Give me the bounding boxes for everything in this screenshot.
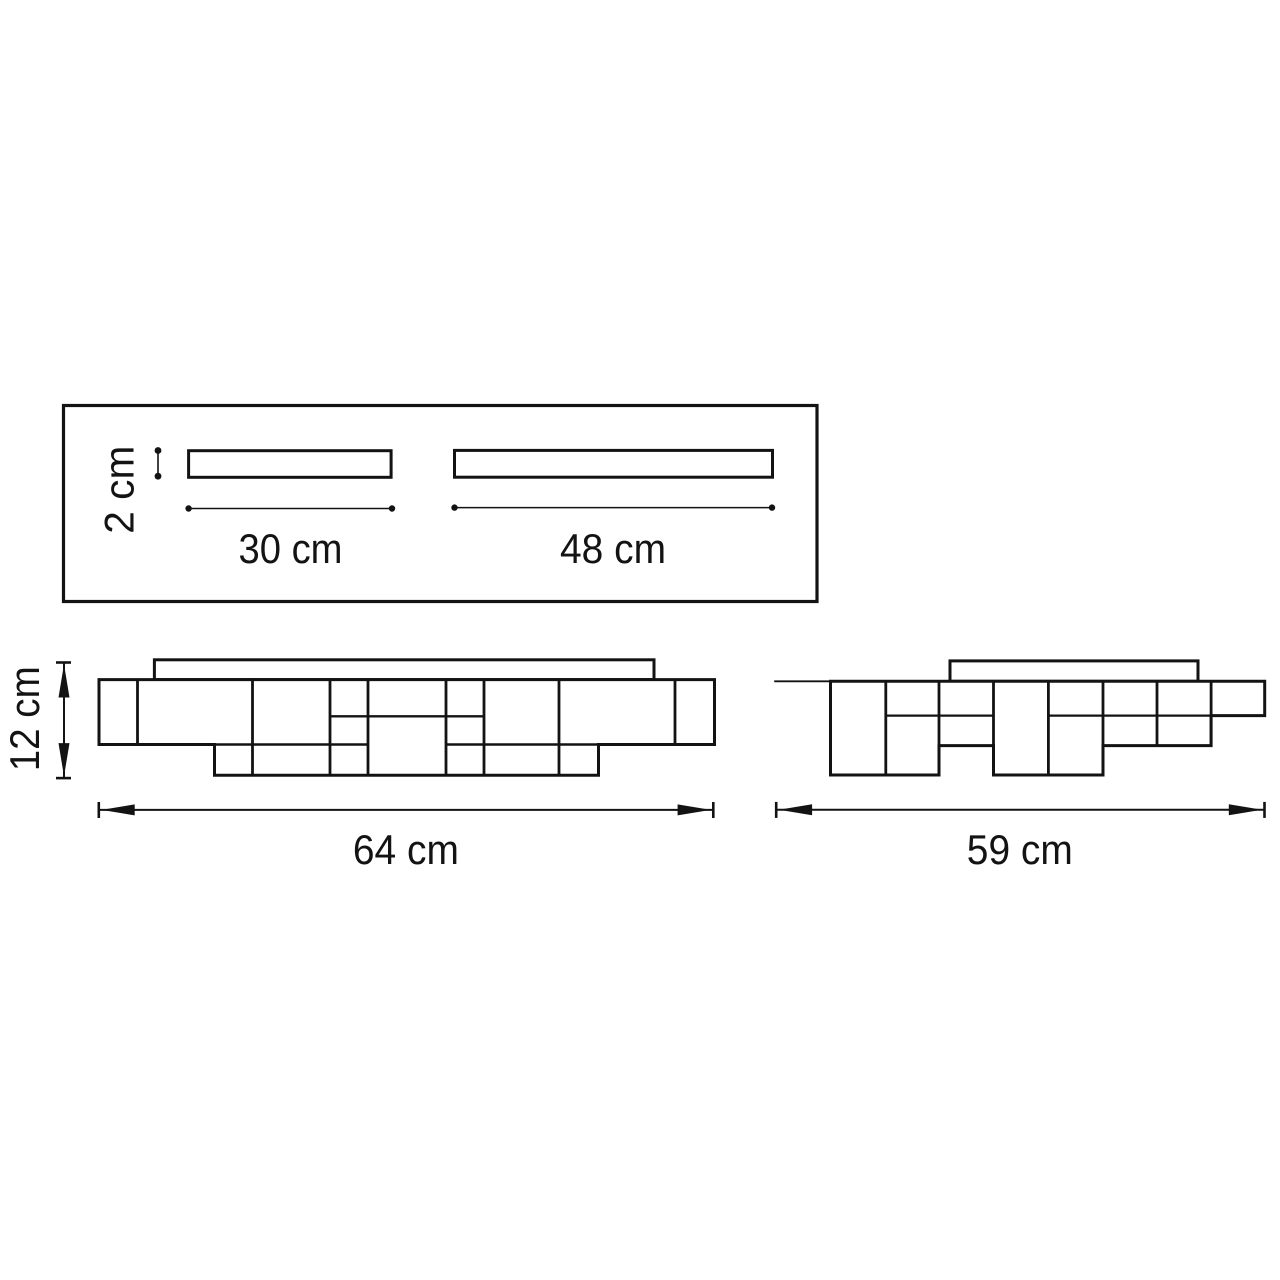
svg-text:59 cm: 59 cm (967, 826, 1073, 873)
svg-text:48 cm: 48 cm (560, 525, 666, 572)
svg-text:30 cm: 30 cm (239, 525, 343, 572)
svg-text:12 cm: 12 cm (1, 666, 48, 771)
svg-text:64 cm: 64 cm (353, 826, 459, 873)
svg-text:2 cm: 2 cm (96, 446, 143, 534)
